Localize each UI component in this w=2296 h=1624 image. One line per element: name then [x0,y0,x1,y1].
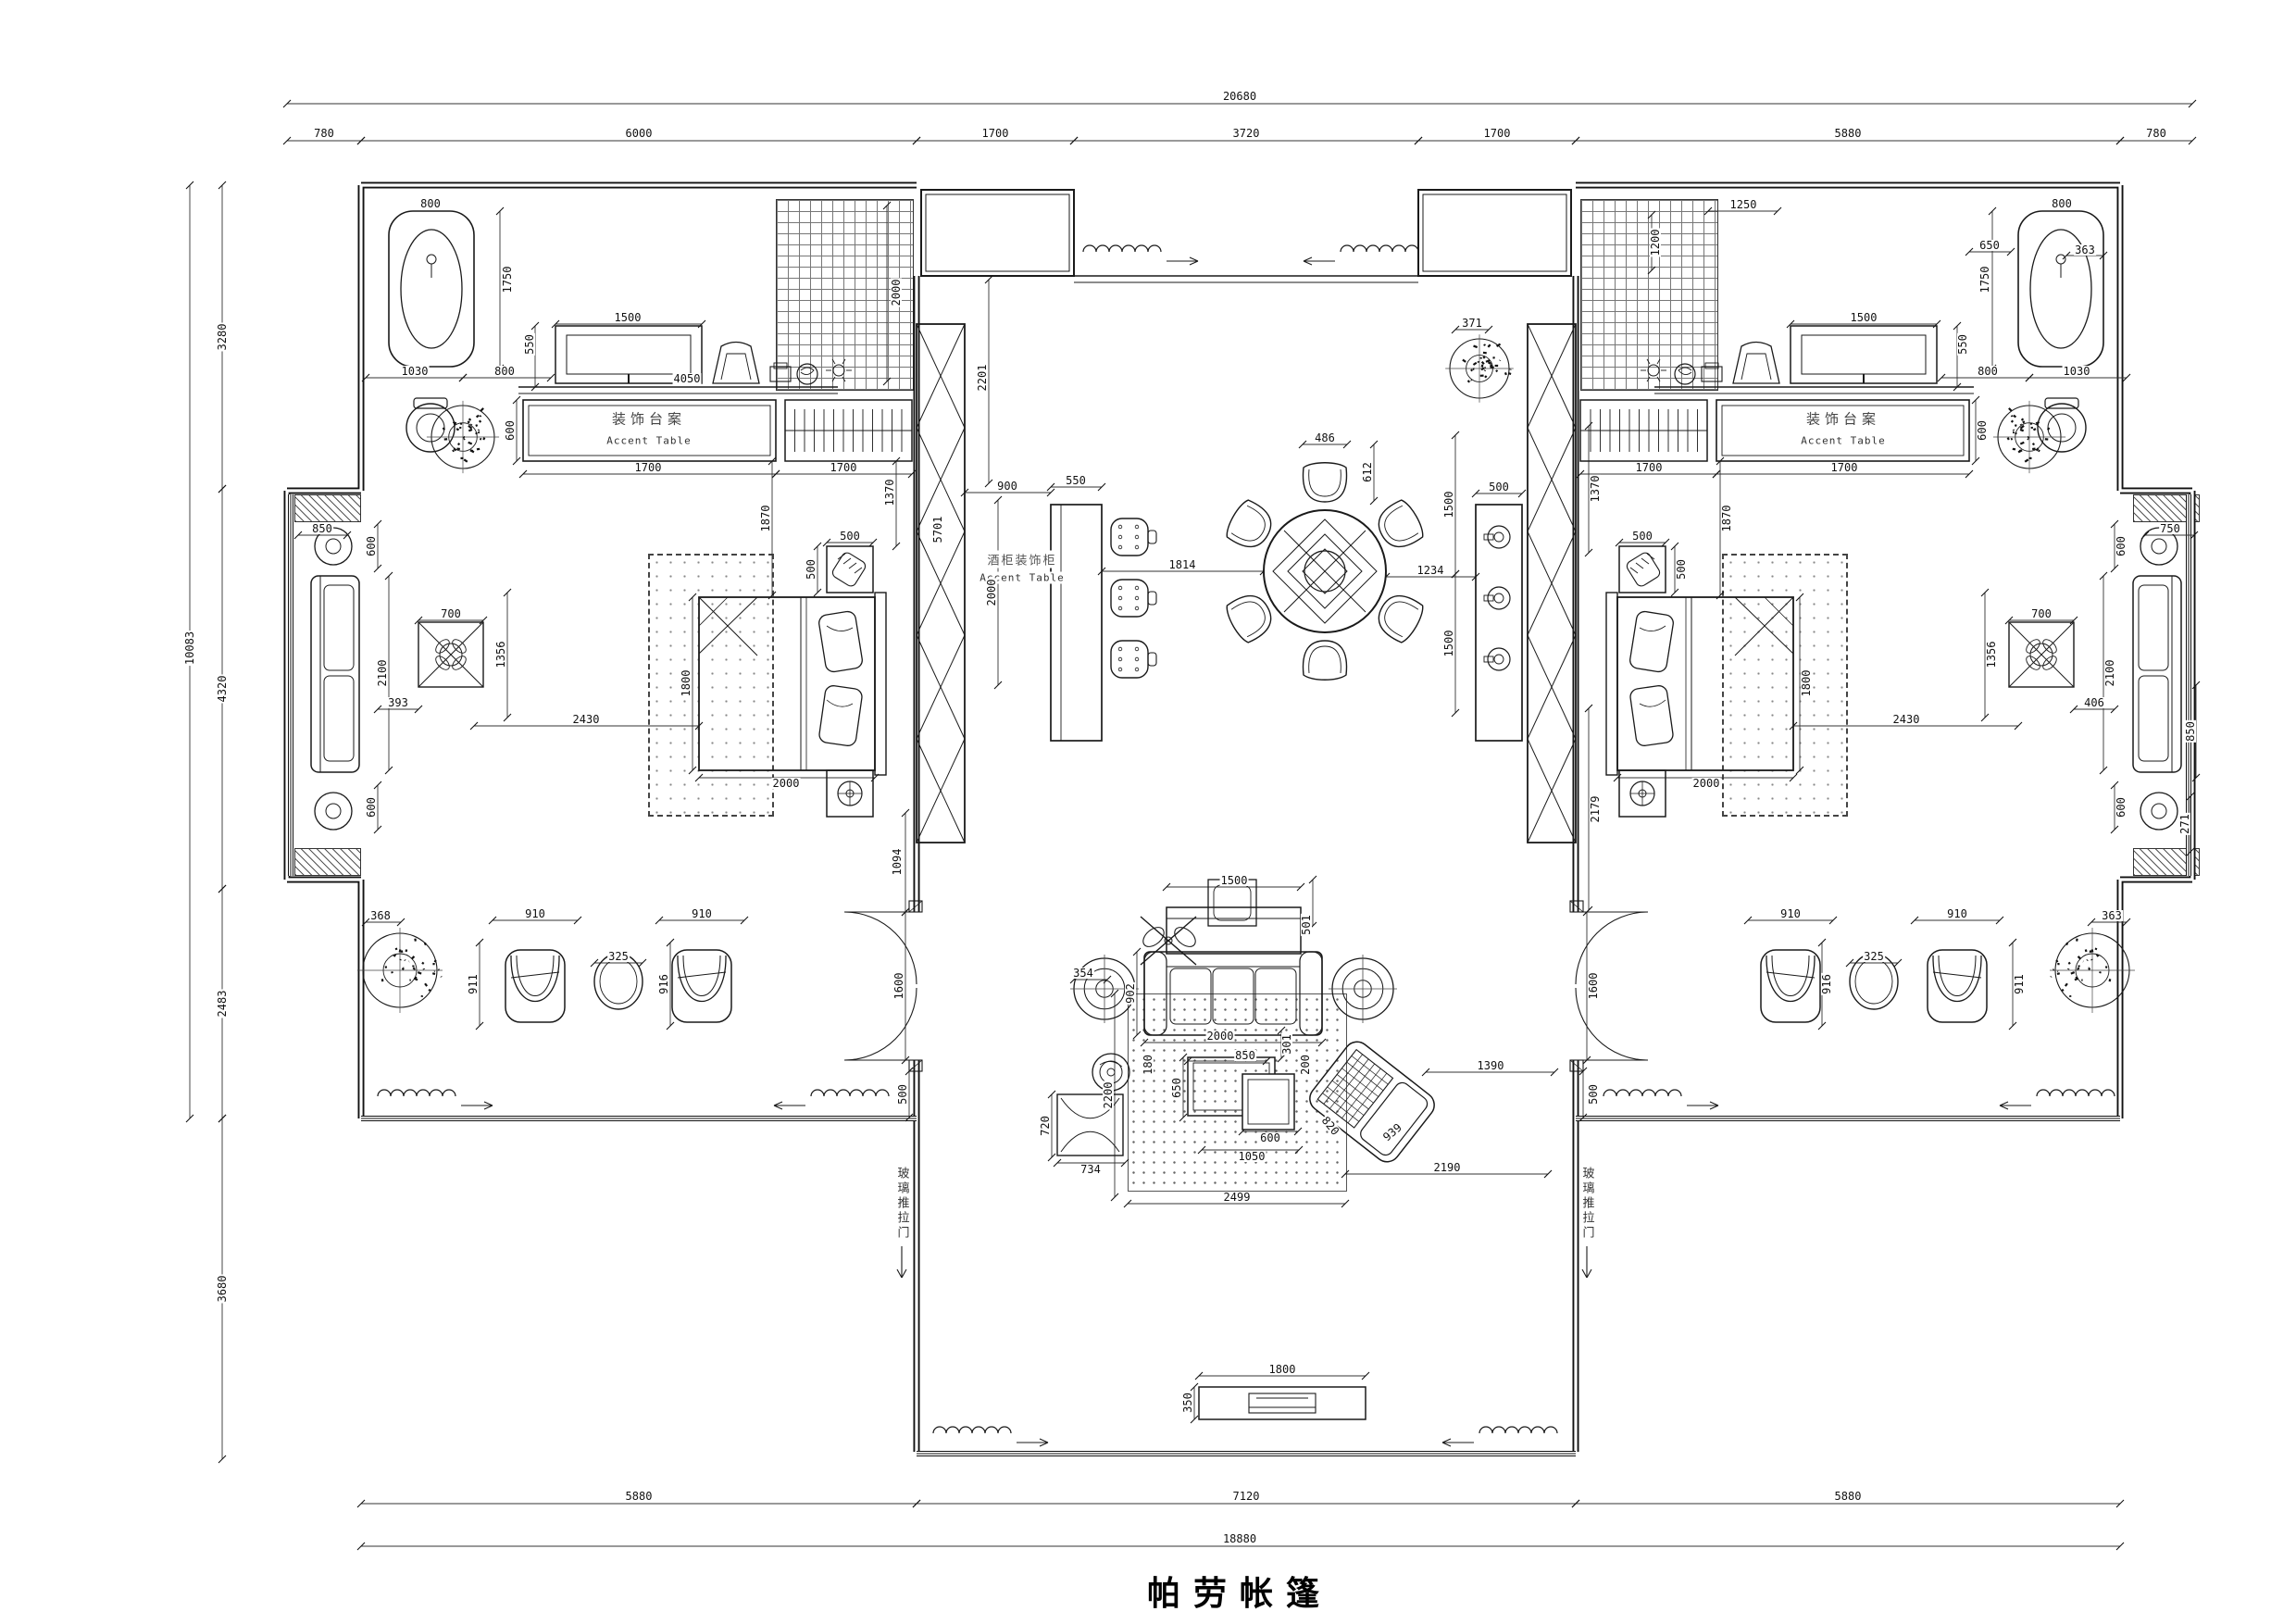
dim-label: 910 [524,908,546,919]
dim-label: 734 [1079,1164,1102,1175]
dim-label: 750 [2159,523,2181,534]
dim-label: 600 [2115,796,2127,818]
dim-label: 350 [1182,1392,1193,1414]
dim-label: 2000 [1206,1031,1235,1042]
dim-label: 20680 [1222,91,1257,102]
dim-label: 900 [996,481,1018,492]
dim-label: 780 [313,128,335,139]
dim-label: 363 [2101,910,2123,921]
dim-label: 800 [419,198,442,209]
drawing-title: 帕劳帐篷 [1147,1567,1332,1615]
dim-label: 550 [1065,475,1087,486]
right-suite-furniture [1570,211,2181,1109]
dim-label: 500 [1676,558,1687,581]
dim-label: 18880 [1222,1533,1257,1544]
dim-label: 354 [1072,968,1094,979]
dim-label: 650 [1171,1077,1182,1099]
room-label: 酒柜装饰柜 [986,551,1057,568]
dim-label: 2100 [377,659,388,688]
dim-label: 3680 [217,1275,228,1304]
dim-label: 800 [2051,198,2073,209]
dim-label: 1814 [1168,559,1197,570]
dim-label: 1750 [1979,266,1990,294]
dim-label: 780 [2145,128,2167,139]
dim-label: 2000 [1692,778,1721,789]
dim-label: 1356 [495,641,506,669]
dim-label: 4050 [673,373,702,384]
dim-label: 180 [1142,1054,1154,1076]
dim-label: 2430 [572,714,601,725]
lounge-chair [1304,1037,1440,1168]
dim-label: 500 [897,1083,908,1106]
dim-label: 271 [2179,813,2190,835]
dim-label: 368 [369,910,392,921]
floorplan-sheet: 帕劳帐篷 20680780600017003720170058807801008… [0,0,2296,1624]
dim-label: 600 [2115,535,2127,557]
floorplan-linework [0,0,2296,1624]
living-room-area [897,880,1591,1446]
dim-label: 1390 [1477,1060,1505,1071]
dim-label: 911 [2014,973,2025,995]
plant-icon [1993,401,2065,473]
dim-label: 2100 [2104,659,2115,688]
dim-label: 486 [1314,432,1336,443]
room-label: 装饰台案 [611,409,687,429]
dim-label: 406 [2083,697,2105,708]
dim-label: 200 [1300,1054,1311,1076]
dim-label: 500 [1588,1083,1599,1106]
dim-label: 910 [691,908,713,919]
dim-label: 2179 [1590,795,1601,824]
room-label: 玻璃推拉门 [1578,1167,1597,1241]
dim-label: 1500 [1850,312,1878,323]
dim-label: 850 [311,523,333,534]
dim-label: 2000 [891,279,902,307]
dim-label: 500 [1631,531,1653,542]
dim-label: 5880 [1834,128,1863,139]
dim-label: 700 [2030,608,2053,619]
center-dining-area [917,245,1576,843]
dim-label: 550 [1957,333,1968,356]
dim-label: 1800 [680,669,692,698]
dim-label: 1700 [830,462,858,473]
plant-icon [1445,334,1514,403]
room-label: Accent Table [1800,435,1886,447]
dim-label: 1750 [502,266,513,294]
dim-label: 301 [1281,1033,1292,1056]
dim-label: 600 [366,535,377,557]
dim-label: 1050 [1238,1151,1267,1162]
room-label: 装饰台案 [1805,409,1881,429]
dim-label: 2200 [1103,1081,1114,1110]
room-label: Accent Table [605,435,692,447]
dim-label: 393 [387,697,409,708]
dim-label: 1250 [1729,199,1758,210]
dim-label: 612 [1362,461,1373,483]
dim-label: 363 [2074,244,2096,256]
dim-label: 3280 [217,323,228,352]
dim-label: 1030 [401,366,430,377]
dim-label: 916 [1821,973,1832,995]
dim-label: 850 [2185,720,2196,743]
dim-label: 2000 [986,579,997,607]
dim-label: 1094 [892,848,903,877]
dim-label: 1500 [614,312,643,323]
dim-label: 325 [1863,951,1885,962]
dim-label: 910 [1779,908,1802,919]
dim-label: 1700 [981,128,1010,139]
left-suite-furniture [311,211,922,1109]
dim-label: 10083 [184,631,195,666]
dim-label: 1800 [1268,1364,1297,1375]
dim-label: 2483 [217,990,228,1018]
dim-label: 1356 [1986,641,1997,669]
dimension-lines [186,100,2200,1550]
dim-label: 501 [1301,914,1312,936]
dim-label: 650 [1978,240,2001,251]
dim-label: 600 [366,796,377,818]
dim-label: 4320 [217,675,228,704]
dim-label: 5701 [932,516,943,544]
dim-label: 2201 [977,364,988,393]
dim-label: 1500 [1220,875,1249,886]
dim-label: 2499 [1223,1192,1252,1203]
dim-label: 1030 [2063,366,2091,377]
dim-label: 371 [1461,318,1483,329]
dim-label: 916 [658,973,669,995]
dim-label: 1200 [1650,229,1661,257]
dim-label: 911 [468,973,479,995]
dim-label: 1500 [1443,491,1454,519]
dim-label: 325 [607,951,630,962]
dim-label: 550 [524,333,535,356]
dim-label: 800 [493,366,516,377]
dim-label: 1700 [1830,462,1859,473]
dim-label: 1870 [1721,505,1732,533]
dim-label: 700 [440,608,462,619]
dim-label: 1870 [760,505,771,533]
dim-label: 800 [1977,366,1999,377]
dim-label: 7120 [1232,1491,1261,1502]
dining-chair [1304,463,1347,502]
dim-label: 3720 [1232,128,1261,139]
dim-label: 850 [1234,1050,1256,1061]
dim-label: 1700 [634,462,663,473]
dim-label: 6000 [625,128,654,139]
dim-label: 500 [805,558,817,581]
dim-label: 1700 [1635,462,1664,473]
dining-chair [1304,641,1347,680]
dim-label: 1500 [1443,630,1454,658]
dim-label: 500 [839,531,861,542]
dim-label: 600 [1259,1132,1281,1143]
dim-label: 1370 [884,479,895,507]
room-label: 玻璃推拉门 [892,1167,912,1241]
dim-label: 2430 [1892,714,1921,725]
plant-icon [357,928,443,1013]
dim-label: 5880 [625,1491,654,1502]
dim-label: 600 [505,419,516,442]
dim-label: 902 [1125,982,1136,1005]
dim-label: 720 [1040,1115,1051,1137]
dim-label: 910 [1946,908,1968,919]
plant-icon [427,401,499,473]
dim-label: 1370 [1590,475,1601,504]
dim-label: 1800 [1801,669,1812,698]
walls [287,185,2192,1454]
dim-label: 2000 [772,778,801,789]
dim-label: 2190 [1433,1162,1462,1173]
dim-label: 1234 [1416,565,1445,576]
dim-label: 1600 [1588,972,1599,1001]
dim-label: 1700 [1483,128,1512,139]
dim-label: 500 [1488,481,1510,493]
dim-label: 600 [1977,419,1988,442]
dim-label: 1600 [893,972,905,1001]
dim-label: 5880 [1834,1491,1863,1502]
